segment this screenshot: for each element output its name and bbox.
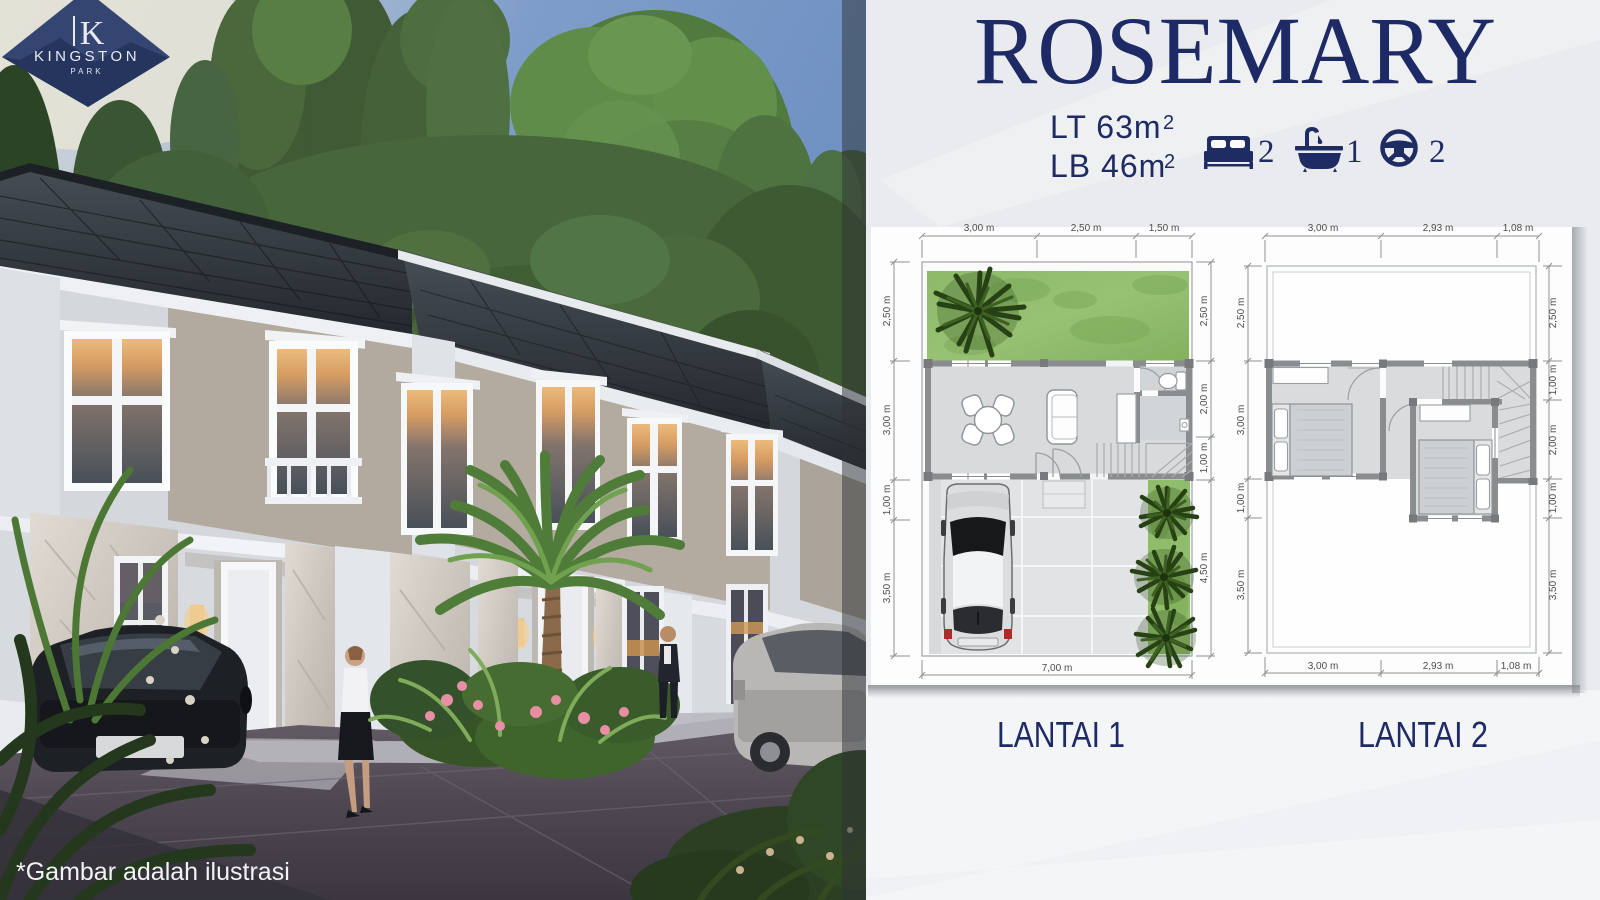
svg-text:*Gambar adalah ilustrasi: *Gambar adalah ilustrasi: [16, 858, 290, 886]
svg-text:2,50 m: 2,50 m: [882, 296, 893, 327]
svg-text:KINGSTON: KINGSTON: [34, 48, 140, 65]
svg-text:3,00 m: 3,00 m: [1308, 661, 1339, 672]
svg-text:2,00 m: 2,00 m: [1548, 425, 1559, 456]
svg-text:1,00 m: 1,00 m: [882, 485, 893, 516]
svg-text:K: K: [80, 15, 105, 52]
svg-text:2,00 m: 2,00 m: [1199, 384, 1210, 415]
svg-text:LB 46m: LB 46m: [1050, 148, 1166, 184]
svg-text:3,00 m: 3,00 m: [882, 405, 893, 436]
svg-text:2,50 m: 2,50 m: [1236, 298, 1247, 329]
svg-text:1: 1: [1346, 134, 1363, 170]
svg-text:2: 2: [1429, 134, 1446, 170]
svg-text:3,00 m: 3,00 m: [1236, 405, 1247, 436]
svg-text:LANTAI 1: LANTAI 1: [997, 714, 1125, 755]
svg-text:3,50 m: 3,50 m: [882, 573, 893, 604]
svg-text:2,50 m: 2,50 m: [1199, 296, 1210, 327]
svg-text:1,00 m: 1,00 m: [1548, 483, 1559, 514]
svg-text:7,00 m: 7,00 m: [1042, 663, 1073, 674]
svg-text:2,93 m: 2,93 m: [1423, 661, 1454, 672]
svg-text:2,93 m: 2,93 m: [1423, 223, 1454, 234]
svg-text:3,50 m: 3,50 m: [1236, 570, 1247, 601]
svg-text:PARK: PARK: [70, 67, 103, 76]
svg-text:2,50 m: 2,50 m: [1548, 298, 1559, 329]
svg-text:3,00 m: 3,00 m: [1308, 223, 1339, 234]
svg-text:3,50 m: 3,50 m: [1548, 570, 1559, 601]
svg-text:1,08 m: 1,08 m: [1503, 223, 1534, 234]
svg-text:1,50 m: 1,50 m: [1149, 223, 1180, 234]
svg-text:2: 2: [1163, 112, 1174, 134]
svg-text:LANTAI 2: LANTAI 2: [1358, 714, 1488, 755]
svg-text:1,00 m: 1,00 m: [1199, 443, 1210, 474]
svg-text:2: 2: [1258, 134, 1275, 170]
svg-text:1,00 m: 1,00 m: [1548, 365, 1559, 396]
svg-text:LT 63m: LT 63m: [1050, 109, 1162, 145]
svg-text:3,00 m: 3,00 m: [964, 223, 995, 234]
svg-text:2,50 m: 2,50 m: [1071, 223, 1102, 234]
svg-text:1,00 m: 1,00 m: [1236, 483, 1247, 514]
svg-text:2: 2: [1164, 151, 1175, 173]
svg-text:1,08 m: 1,08 m: [1501, 661, 1532, 672]
svg-text:4,50 m: 4,50 m: [1199, 553, 1210, 584]
svg-text:ROSEMARY: ROSEMARY: [974, 0, 1496, 104]
